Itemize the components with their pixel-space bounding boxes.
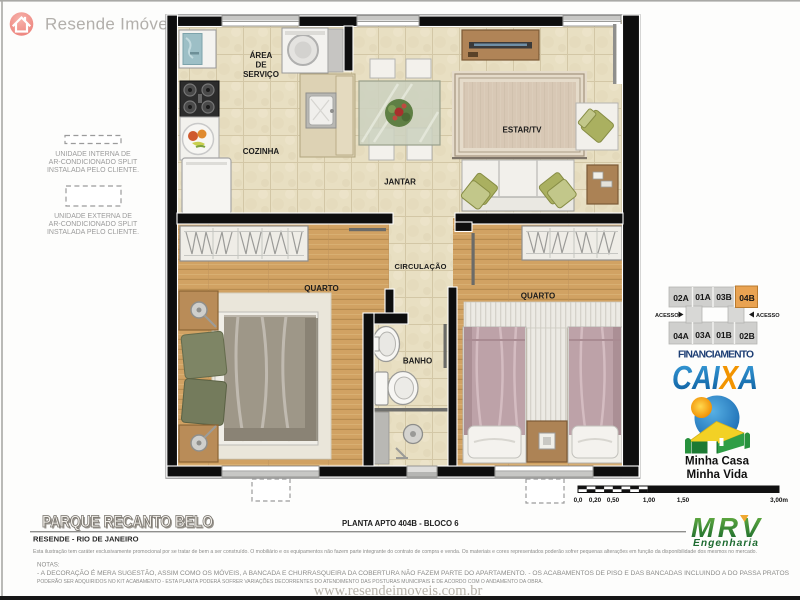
svg-text:01B: 01B [716,330,732,340]
svg-text:04B: 04B [739,293,755,303]
svg-text:0,50: 0,50 [607,497,620,504]
svg-text:ÁREA: ÁREA [250,51,273,60]
svg-text:SERVIÇO: SERVIÇO [243,70,279,79]
svg-text:03B: 03B [716,292,732,302]
svg-text:02A: 02A [673,293,689,303]
svg-text:02B: 02B [739,331,755,341]
svg-text:INSTALADA PELO CLIENTE.: INSTALADA PELO CLIENTE. [47,229,139,236]
svg-text:CAIXA: CAIXA [672,359,758,396]
svg-text:DE: DE [255,61,267,70]
svg-text:1,00: 1,00 [643,497,656,504]
svg-text:Minha Casa: Minha Casa [685,454,749,468]
svg-text:PLANTA APTO 404B - BLOCO 6: PLANTA APTO 404B - BLOCO 6 [342,519,459,528]
svg-text:03A: 03A [695,330,711,340]
svg-text:PARQUE RECANTO BELO: PARQUE RECANTO BELO [42,513,213,531]
svg-text:UNIDADE INTERNA DE: UNIDADE INTERNA DE [55,151,131,158]
svg-text:Engenharia: Engenharia [693,538,759,549]
svg-text:0,0: 0,0 [574,497,583,504]
svg-text:BANHO: BANHO [403,357,432,366]
svg-text:ACESSO: ACESSO [756,313,780,319]
svg-text:1,50: 1,50 [677,497,690,504]
svg-text:AR-CONDICIONADO SPLIT: AR-CONDICIONADO SPLIT [49,159,138,166]
svg-text:COZINHA: COZINHA [243,147,280,156]
svg-text:JANTAR: JANTAR [384,178,416,187]
svg-text:04A: 04A [673,331,689,341]
svg-text:3,00m: 3,00m [770,497,788,504]
svg-text:0,20: 0,20 [589,497,602,504]
svg-text:AR-CONDICIONADO SPLIT: AR-CONDICIONADO SPLIT [49,221,138,228]
svg-text:UNIDADE EXTERNA DE: UNIDADE EXTERNA DE [54,213,132,220]
svg-text:- A DECORAÇÃO É MERA SUGESTÃO,: - A DECORAÇÃO É MERA SUGESTÃO, ASSIM COM… [37,570,789,577]
svg-text:NOTAS:: NOTAS: [37,562,60,569]
svg-text:Minha Vida: Minha Vida [687,467,748,481]
svg-text:QUARTO: QUARTO [521,292,556,301]
svg-text:ACESSO: ACESSO [655,313,679,319]
svg-text:CIRCULAÇÃO: CIRCULAÇÃO [395,262,447,271]
svg-text:QUARTO: QUARTO [304,284,339,293]
svg-text:Resende Imóve: Resende Imóve [45,15,168,34]
svg-text:INSTALADA PELO CLIENTE.: INSTALADA PELO CLIENTE. [47,167,139,174]
svg-text:ESTAR/TV: ESTAR/TV [503,126,543,135]
svg-text:01A: 01A [695,292,711,302]
svg-text:www.resendeimoveis.com.br: www.resendeimoveis.com.br [314,583,483,599]
svg-text:Esta ilustração tem caráter ex: Esta ilustração tem caráter exclusivamen… [33,549,757,555]
svg-text:RESENDE - RIO DE JANEIRO: RESENDE - RIO DE JANEIRO [33,535,139,544]
